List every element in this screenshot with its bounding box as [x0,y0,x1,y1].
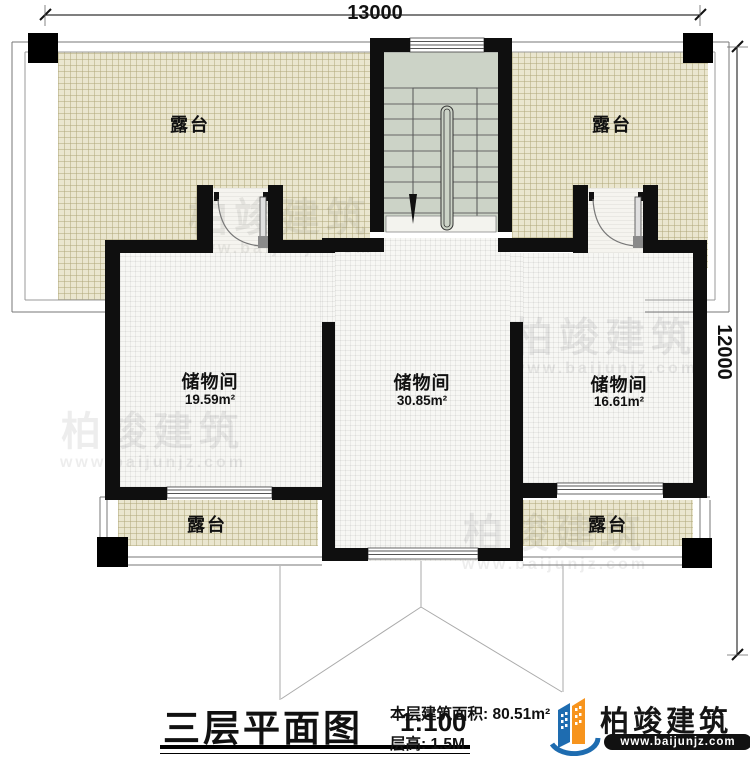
floor-area-line: 本层建筑面积: 80.51m² [390,702,550,724]
column-top-right [683,33,713,63]
floor-area-value: 80.51m² [492,706,550,723]
floor-height-label: 层高: [390,736,426,753]
window-right-room [557,483,663,494]
company-logo-icon [548,694,602,756]
floor-height-value: 1.5M [430,736,464,753]
column-top-left [28,33,58,63]
plan-title: 三层平面图 [163,698,363,752]
dimension-top-label: 13000 [340,2,410,25]
window-left-room [167,487,272,498]
floor-area-label: 本层建筑面积: [390,706,488,723]
terrace-top-left-label: 露台 [150,111,230,137]
company-logo-website: www.baijunjz.com [604,734,750,750]
company-logo: 柏竣建筑 www.baijunjz.com [548,694,750,760]
door-right [589,192,643,248]
storage-left-area: 19.59m² [145,392,275,407]
storage-right-area: 16.61m² [554,394,684,409]
floorplan-page: 柏竣建筑 www.baijunjz.com 柏竣建筑 www.baijunjz.… [0,0,750,765]
storage-middle-area: 30.85m² [357,393,487,408]
terrace-top-right-label: 露台 [572,111,652,137]
dimension-right-label: 12000 [711,302,735,402]
floor-height-line: 层高: 1.5M [390,732,465,754]
storage-middle-label: 储物间 [357,369,487,395]
window-stair-top [410,38,484,52]
dimension-lines [40,5,748,660]
staircase [384,88,498,232]
roof-outline-lines [280,561,563,700]
storage-left-label: 储物间 [145,368,275,394]
stair-rail-outer [441,106,453,230]
window-middle-room [368,548,478,559]
terrace-bottom-left-label: 露台 [167,511,247,537]
terrace-bottom-right-label: 露台 [568,511,648,537]
column-bottom-left [97,537,128,567]
column-bottom-right [682,538,712,568]
door-left [214,192,268,248]
